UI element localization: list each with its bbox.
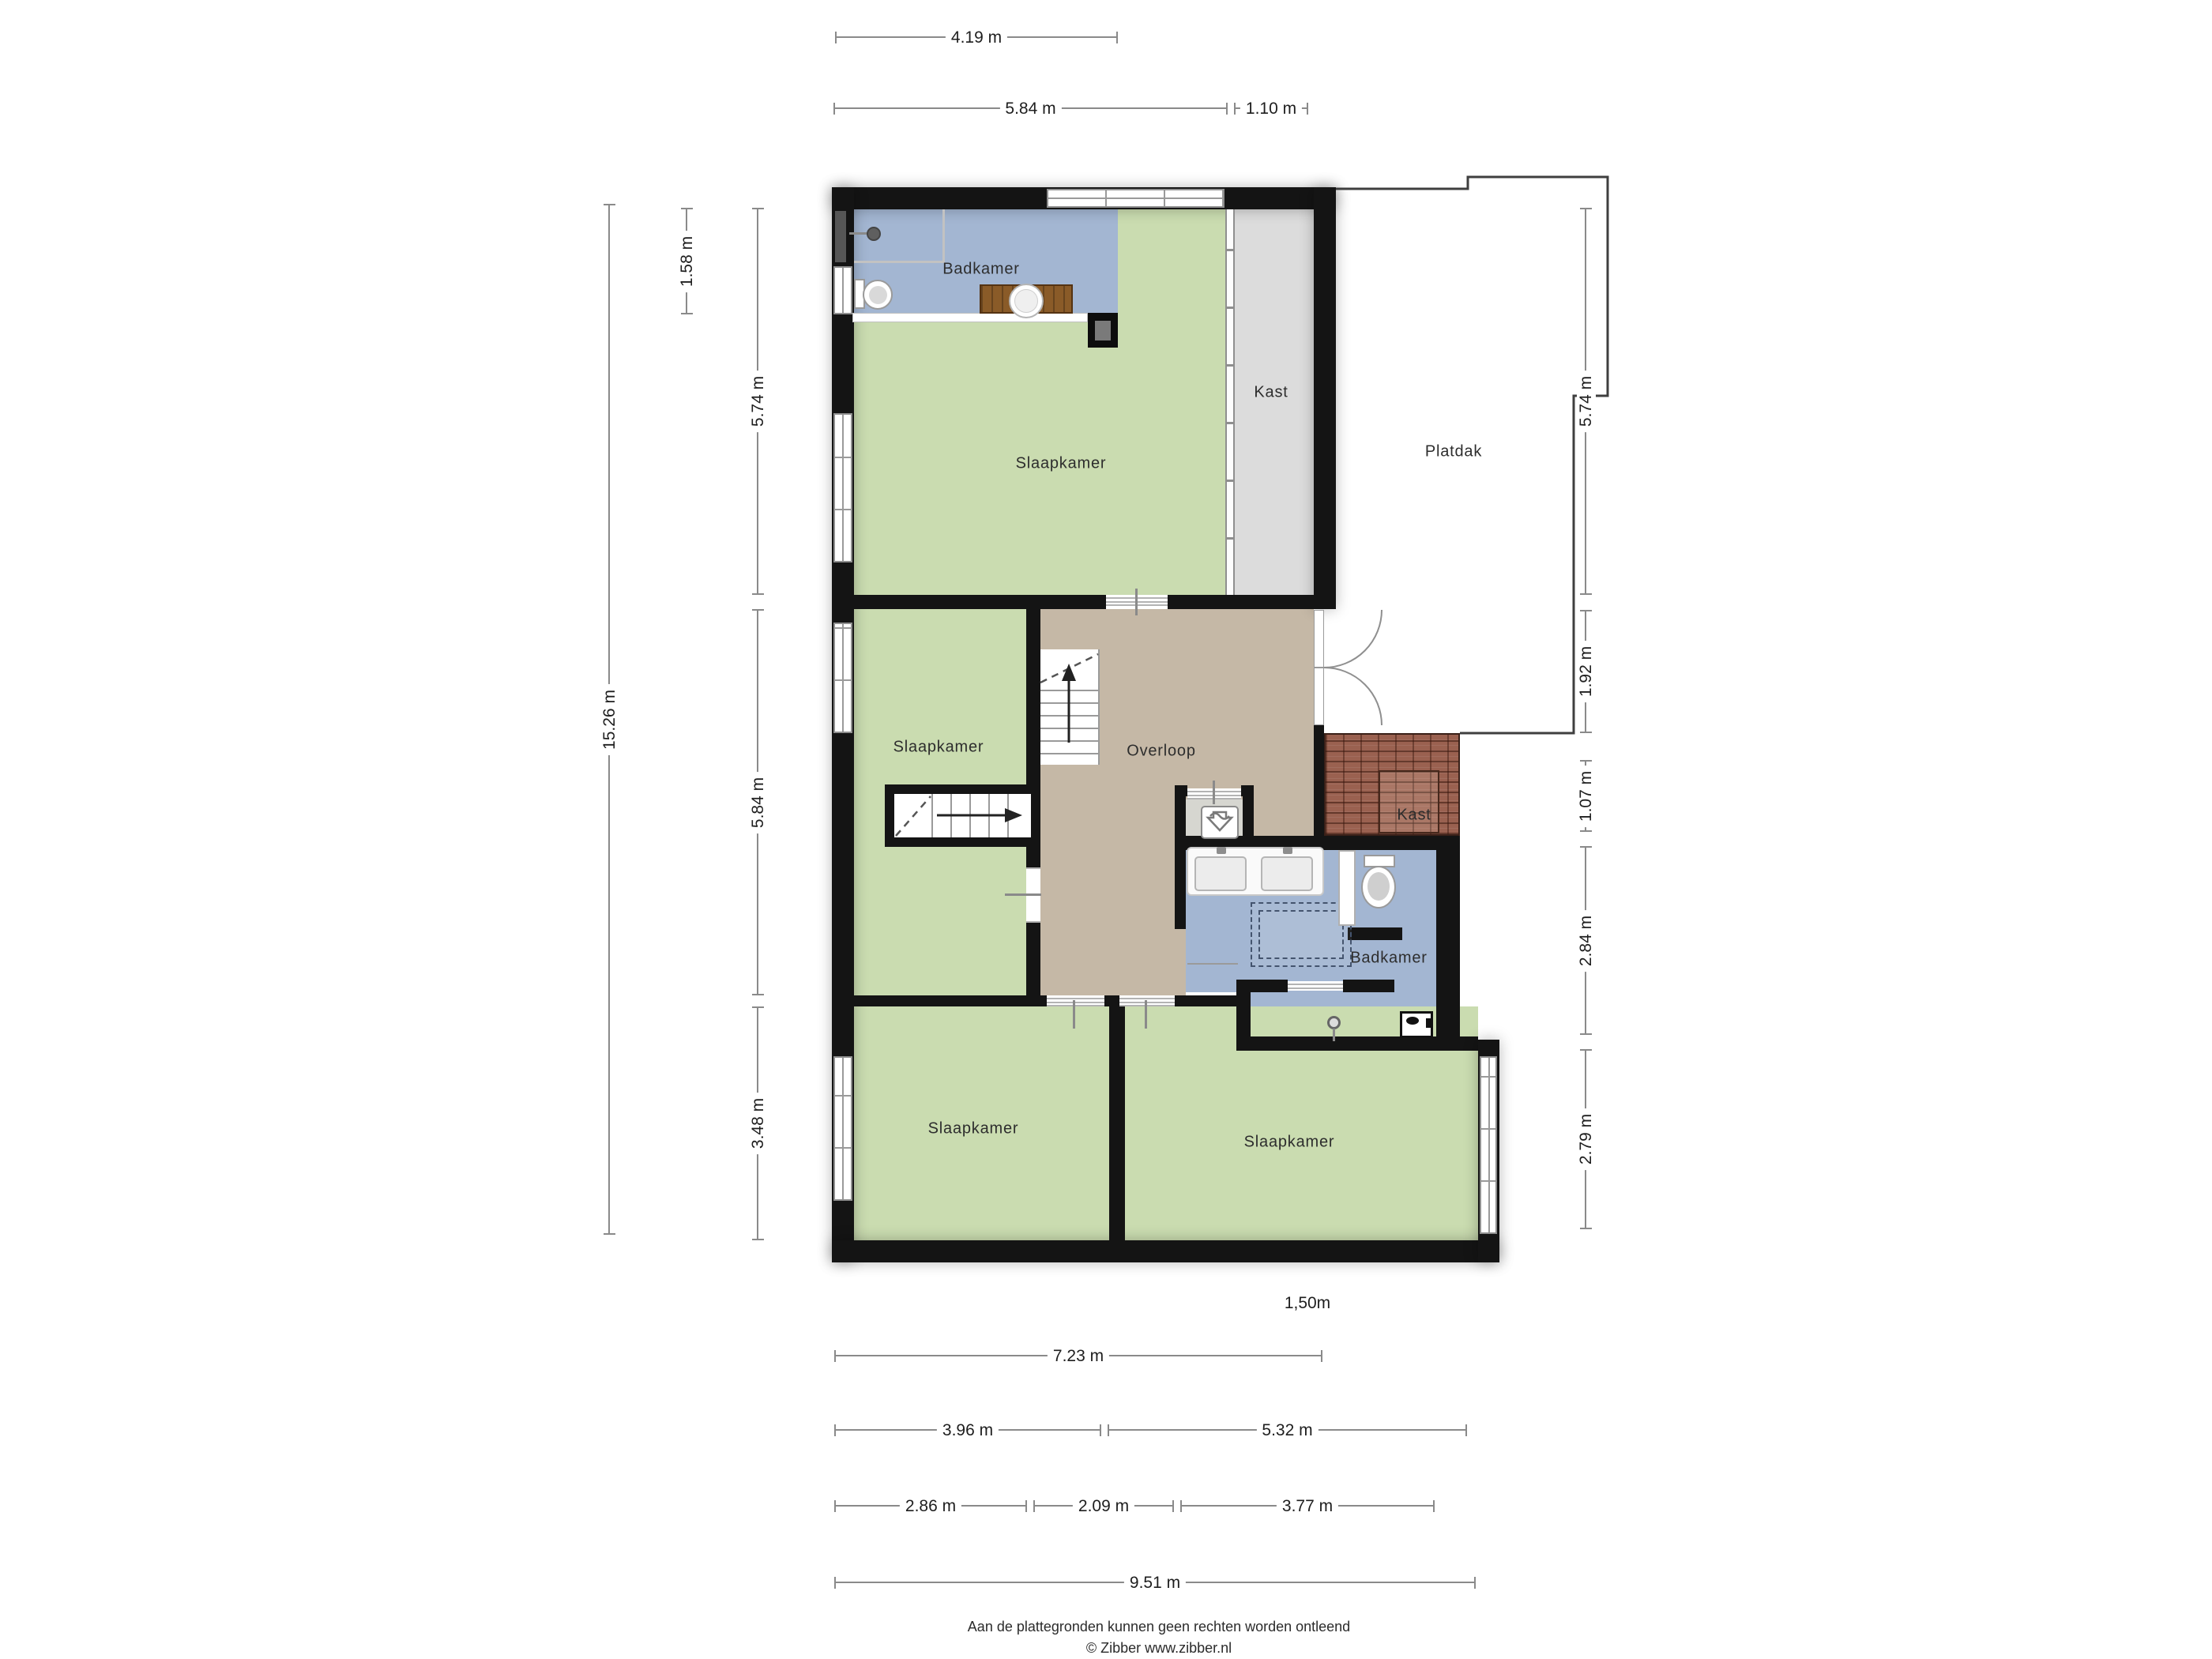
door-arc-top bbox=[1324, 610, 1382, 668]
room-label-slaapkamer-bottom-right: Slaapkamer bbox=[1244, 1134, 1335, 1152]
dimension-label: 5.84 m bbox=[749, 771, 768, 833]
dimension-v: 5.74 m bbox=[1585, 208, 1586, 595]
dimension-label: 1.07 m bbox=[1577, 765, 1596, 826]
stair-up-arrow-head bbox=[1062, 664, 1076, 681]
dimension-h: 4.19 m bbox=[835, 36, 1118, 38]
stair-lower-cutline bbox=[896, 796, 931, 836]
dimension-v: 5.84 m bbox=[757, 609, 758, 995]
room-label-slaapkamer-bottom-left: Slaapkamer bbox=[928, 1120, 1019, 1138]
dimension-h: 3.96 m bbox=[834, 1429, 1101, 1431]
dimension-h: 3.77 m bbox=[1180, 1505, 1435, 1507]
footer-disclaimer: Aan de plattegronden kunnen geen rechten… bbox=[968, 1616, 1350, 1638]
dimension-v: 1.58 m bbox=[686, 208, 687, 314]
dimension-label: 1.58 m bbox=[678, 230, 697, 292]
dimension-label: 4.19 m bbox=[946, 28, 1007, 47]
room-label-kast-top: Kast bbox=[1254, 384, 1288, 402]
dimension-label: 3.48 m bbox=[749, 1093, 768, 1154]
floorplan-canvas: BadkamerSlaapkamerKastPlatdakSlaapkamerO… bbox=[0, 0, 2212, 1659]
stair-lower-arrow-head bbox=[1005, 808, 1022, 822]
dimension-label: 2.79 m bbox=[1577, 1108, 1596, 1170]
dimension-label: 1.10 m bbox=[1240, 100, 1302, 118]
dimension-v: 3.48 m bbox=[757, 1006, 758, 1240]
dimension-h: 9.51 m bbox=[834, 1582, 1476, 1583]
dimension-label: 3.77 m bbox=[1277, 1497, 1338, 1516]
laundry-icon bbox=[1208, 812, 1232, 830]
footer-copyright: © Zibber www.zibber.nl bbox=[968, 1638, 1350, 1659]
dimension-label: 5.74 m bbox=[1577, 371, 1596, 432]
dimension-label: 5.32 m bbox=[1256, 1421, 1318, 1440]
dimension-v: 5.74 m bbox=[757, 208, 758, 595]
dimension-h: 5.32 m bbox=[1108, 1429, 1467, 1431]
dimension-label: 3.96 m bbox=[937, 1421, 999, 1440]
dimension-label: 15.26 m bbox=[600, 684, 619, 755]
dimension-label: 2.86 m bbox=[900, 1497, 961, 1516]
dimension-label: 2.84 m bbox=[1577, 909, 1596, 971]
plan-linework bbox=[0, 0, 2212, 1659]
room-label-badkamer-mid: Badkamer bbox=[1350, 950, 1428, 968]
dimension-label: 9.51 m bbox=[1124, 1574, 1186, 1593]
dimension-h: 2.09 m bbox=[1033, 1505, 1174, 1507]
room-label-slaapkamer-mid: Slaapkamer bbox=[893, 739, 984, 757]
dimension-v: 1.92 m bbox=[1585, 610, 1586, 733]
dimension-h: 5.84 m bbox=[833, 107, 1228, 109]
dimension-label: 5.84 m bbox=[999, 100, 1061, 118]
room-label-platdak: Platdak bbox=[1425, 443, 1482, 461]
dimension-h: 7.23 m bbox=[834, 1355, 1322, 1356]
dimension-v: 2.84 m bbox=[1585, 846, 1586, 1035]
room-label-badkamer-top: Badkamer bbox=[942, 261, 1020, 279]
dimension-h: 1.10 m bbox=[1234, 107, 1308, 109]
dimension-label: 1.92 m bbox=[1577, 641, 1596, 702]
dimension-label: 5.74 m bbox=[749, 371, 768, 432]
dimension-h: 2.86 m bbox=[834, 1505, 1027, 1507]
dimension-label: 7.23 m bbox=[1048, 1347, 1109, 1366]
room-label-kast-tiled: Kast bbox=[1397, 807, 1431, 825]
room-label-overloop: Overloop bbox=[1127, 743, 1196, 761]
room-label-slaapkamer-top: Slaapkamer bbox=[1016, 455, 1107, 473]
height-annotation: 1,50m bbox=[1285, 1294, 1330, 1313]
dimension-v: 1.07 m bbox=[1585, 760, 1586, 832]
dimension-label: 2.09 m bbox=[1073, 1497, 1134, 1516]
dimension-v: 15.26 m bbox=[608, 204, 610, 1235]
door-arc-bottom bbox=[1324, 668, 1382, 725]
footer: Aan de plattegronden kunnen geen rechten… bbox=[968, 1616, 1350, 1659]
dimension-v: 2.79 m bbox=[1585, 1049, 1586, 1229]
